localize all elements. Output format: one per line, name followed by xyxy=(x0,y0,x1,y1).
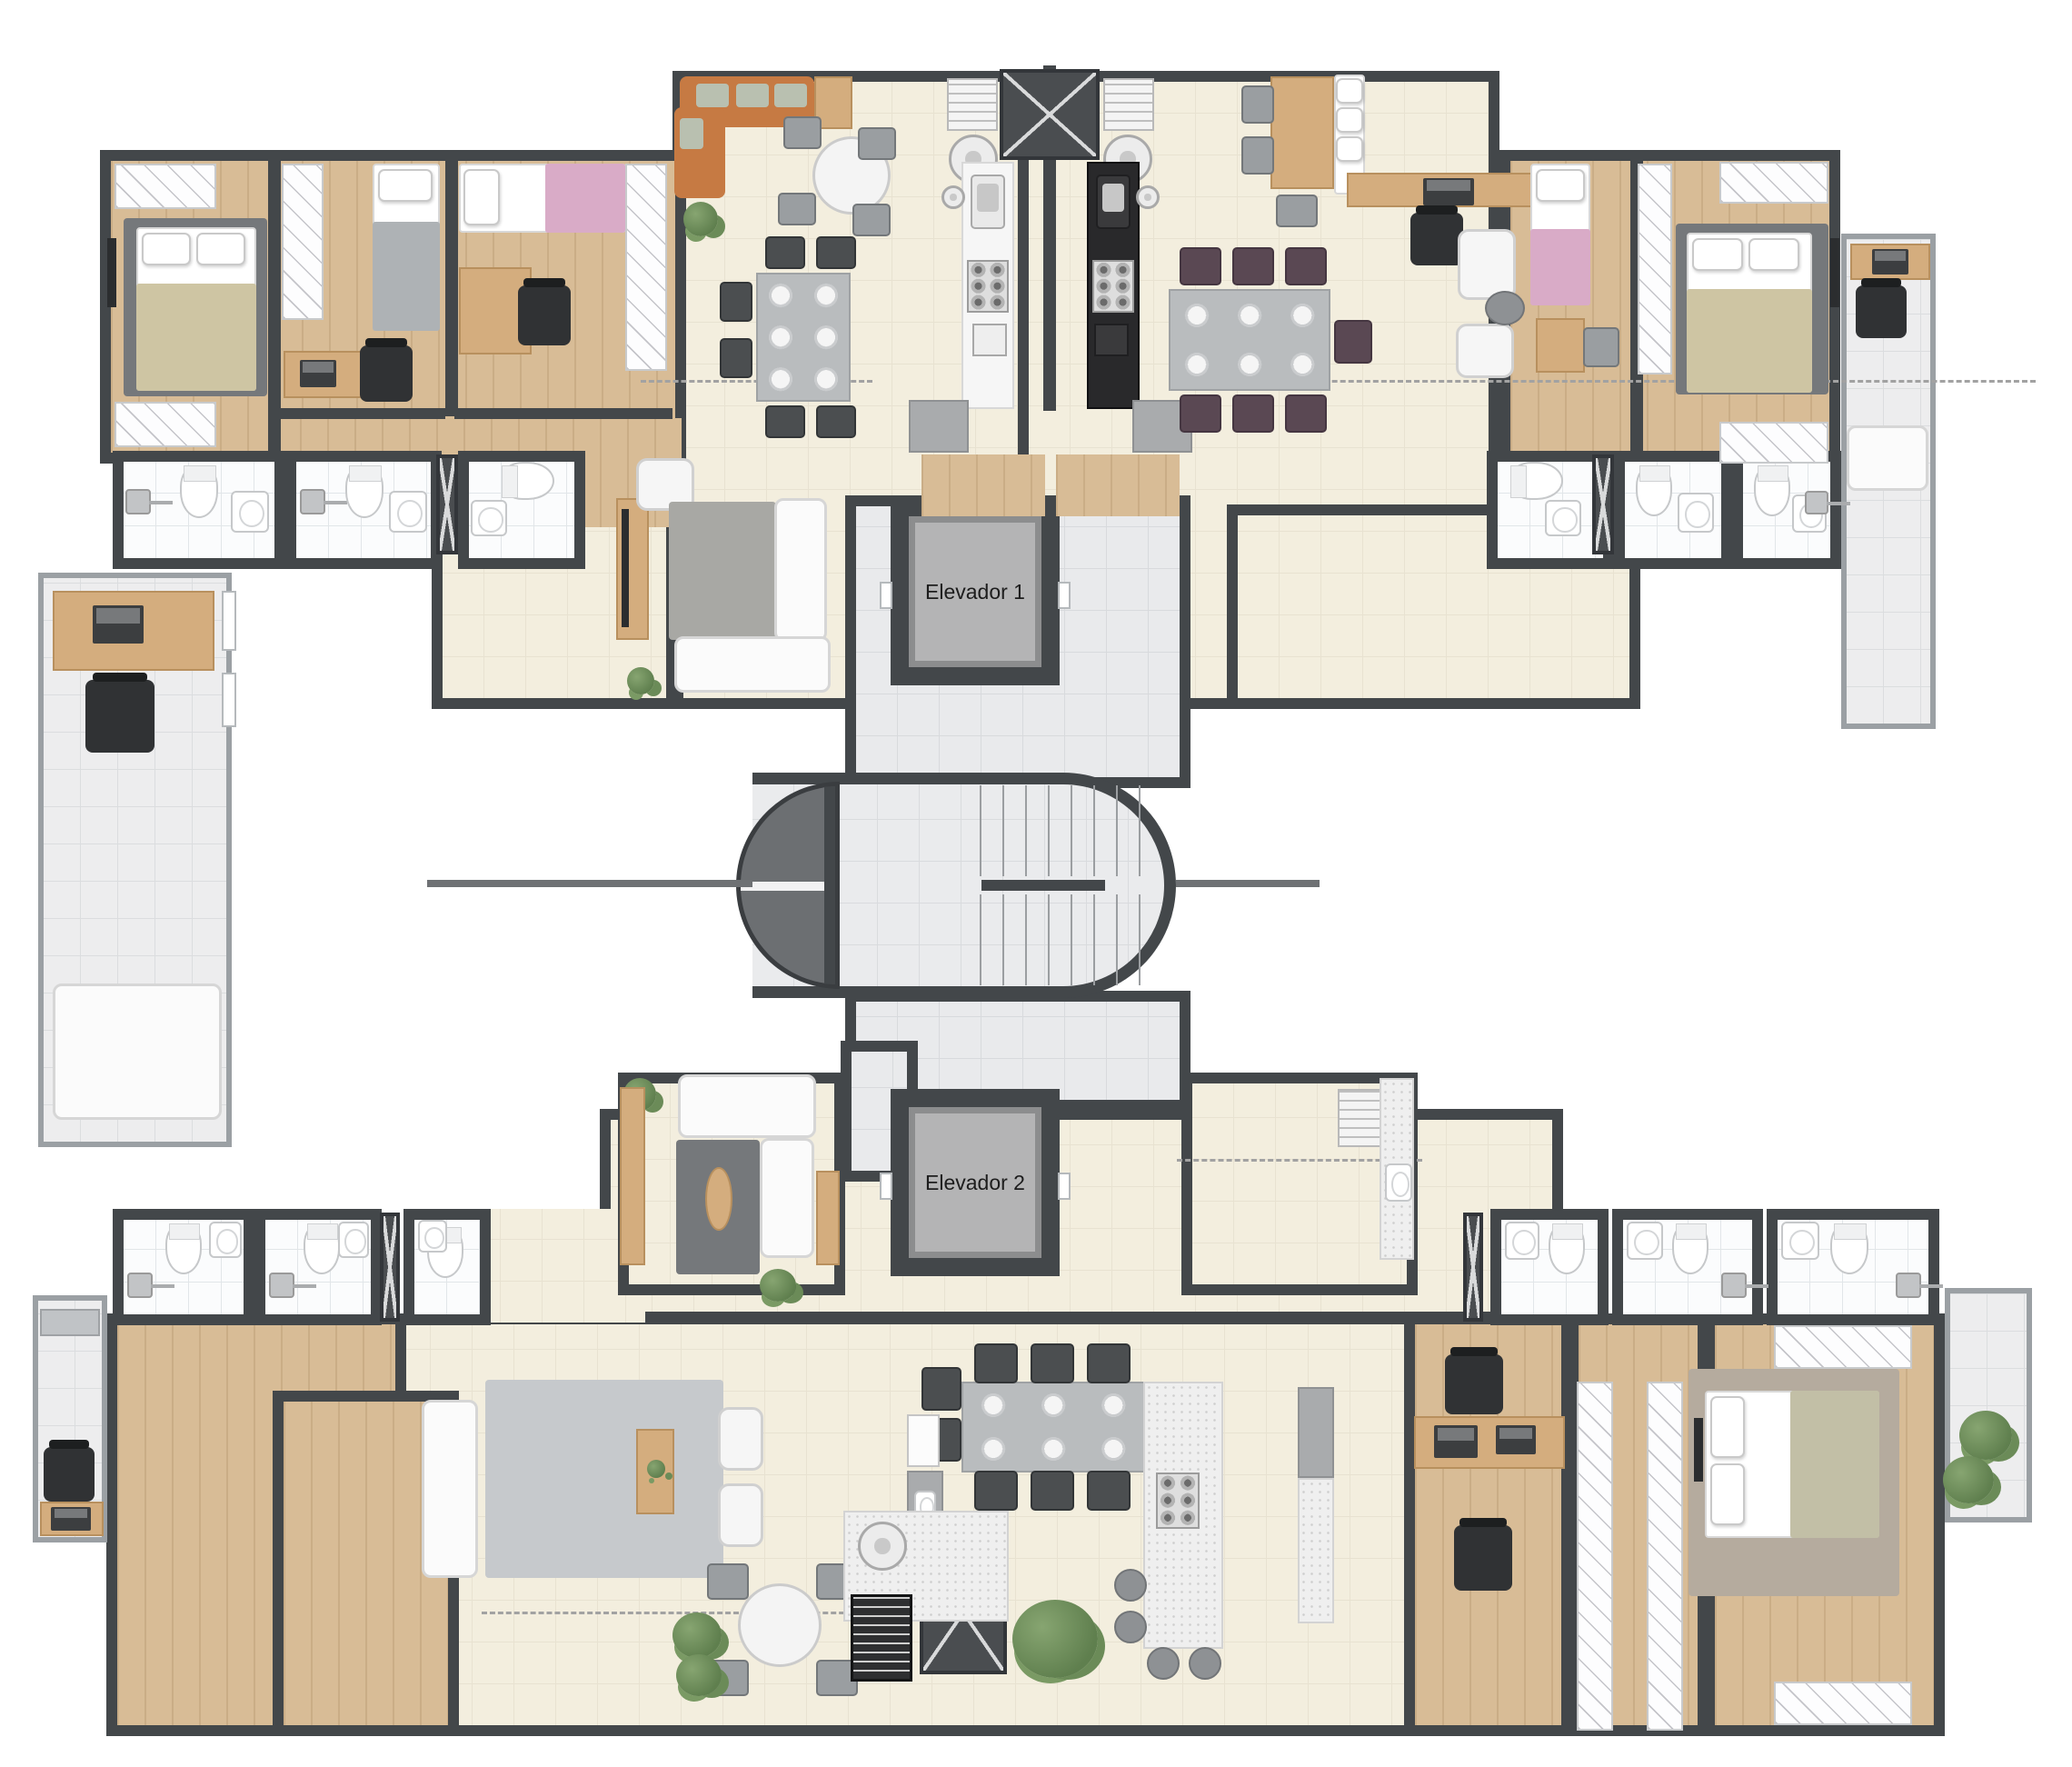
window xyxy=(222,591,236,651)
sink xyxy=(1781,1222,1819,1260)
barbecue-grill xyxy=(851,1594,912,1682)
faucet xyxy=(941,185,965,209)
toilet xyxy=(1830,1223,1868,1274)
toilet xyxy=(180,465,218,518)
pillow xyxy=(1336,78,1363,104)
toilet xyxy=(1754,465,1790,516)
toilet xyxy=(1510,462,1563,500)
plant xyxy=(647,1460,665,1478)
shower-head xyxy=(269,1273,294,1298)
office-chair xyxy=(85,680,154,753)
office-chair xyxy=(1454,1525,1512,1591)
chair xyxy=(1087,1343,1131,1383)
kitchen-sink xyxy=(1096,175,1131,229)
chair xyxy=(765,236,805,269)
chair xyxy=(1031,1343,1074,1383)
faucet xyxy=(1136,185,1160,209)
cooktop xyxy=(1156,1472,1200,1529)
chair xyxy=(1285,247,1327,285)
stove xyxy=(967,260,1009,313)
wardrobe xyxy=(115,402,216,447)
armchair xyxy=(718,1407,763,1471)
chair xyxy=(858,127,896,160)
chair xyxy=(1285,394,1327,433)
chair xyxy=(720,338,752,378)
cushion xyxy=(696,84,729,107)
toilet xyxy=(304,1223,340,1274)
sink xyxy=(389,491,427,533)
cushion xyxy=(736,84,769,107)
l-sofa xyxy=(674,636,831,693)
entry-floor-left xyxy=(921,454,1045,516)
plant xyxy=(1959,1411,2012,1460)
closet xyxy=(625,164,667,371)
office-chair xyxy=(1856,285,1907,338)
pillow xyxy=(1748,238,1799,271)
laundry-tank xyxy=(1103,78,1154,131)
chair xyxy=(1031,1471,1074,1511)
tv-panel xyxy=(1694,1418,1703,1482)
chair xyxy=(1241,85,1274,124)
bar-stool xyxy=(1114,1569,1147,1602)
round-sink xyxy=(858,1522,907,1571)
fridge xyxy=(907,1414,940,1467)
pillow xyxy=(196,233,245,265)
wall-stub-right xyxy=(1176,880,1320,887)
plant xyxy=(676,1654,722,1696)
l-sofa xyxy=(678,1074,816,1138)
sink xyxy=(1627,1222,1663,1260)
plant xyxy=(1012,1600,1098,1678)
dining-table xyxy=(756,273,851,402)
office-chair xyxy=(1410,213,1463,265)
chair xyxy=(1232,247,1274,285)
pillow xyxy=(1710,1396,1745,1458)
chair xyxy=(720,282,752,322)
toilet xyxy=(502,462,554,500)
plant xyxy=(627,667,654,694)
oven xyxy=(1094,324,1129,356)
sink xyxy=(1385,1163,1412,1202)
bar-stool xyxy=(1147,1647,1180,1680)
cushion xyxy=(680,118,703,149)
l-sofa xyxy=(774,498,827,642)
closet xyxy=(1577,1382,1613,1731)
chair xyxy=(816,236,856,269)
stair-rail xyxy=(981,880,1105,891)
bed-blanket xyxy=(545,164,625,233)
armchair xyxy=(718,1483,763,1547)
sink xyxy=(1545,500,1581,536)
sink xyxy=(471,500,507,536)
balcony-sofa xyxy=(53,983,222,1120)
pillow xyxy=(463,169,500,225)
vent-shaft xyxy=(1463,1213,1483,1322)
stair-treads-upper xyxy=(980,785,1160,876)
dining-table xyxy=(961,1382,1145,1472)
living-rug xyxy=(485,1380,723,1578)
shower-head xyxy=(1896,1273,1921,1298)
chair xyxy=(1232,394,1274,433)
shower-head xyxy=(300,489,325,514)
window xyxy=(222,673,236,727)
pillow xyxy=(142,233,191,265)
tv-panel xyxy=(107,238,116,307)
chair xyxy=(1180,394,1221,433)
entry-cabinet xyxy=(909,400,969,453)
shower-head xyxy=(1805,491,1828,514)
pillow xyxy=(378,169,433,202)
cabinet xyxy=(1298,1387,1334,1478)
chair xyxy=(921,1367,961,1411)
chair xyxy=(778,193,816,225)
office-chair xyxy=(1445,1354,1503,1414)
chair xyxy=(974,1343,1018,1383)
bed-blanket xyxy=(136,284,256,391)
toilet xyxy=(165,1223,202,1274)
oven xyxy=(972,324,1007,356)
laptop xyxy=(93,605,144,644)
bed-blanket xyxy=(1530,229,1590,305)
laptop xyxy=(300,360,336,387)
laundry-tank xyxy=(947,78,998,131)
lounge-chair xyxy=(1847,425,1928,491)
wing-partition xyxy=(454,408,672,419)
laptop xyxy=(1872,249,1908,275)
chair xyxy=(707,1563,749,1600)
sink xyxy=(338,1222,369,1258)
shower-head xyxy=(1721,1273,1747,1298)
toilet xyxy=(1672,1223,1708,1274)
vent-shaft xyxy=(436,454,458,554)
pillow xyxy=(1336,136,1363,162)
wall-stub-left xyxy=(427,880,752,887)
bar-stool xyxy=(1189,1647,1221,1680)
chair xyxy=(1087,1471,1131,1511)
elevator-door-tick xyxy=(1058,1173,1071,1200)
plant xyxy=(672,1612,722,1658)
elevator-door-tick xyxy=(1058,582,1071,609)
laptop xyxy=(51,1507,91,1531)
wardrobe xyxy=(1719,422,1828,464)
shower-head xyxy=(125,489,151,514)
washing-machine xyxy=(1338,1089,1383,1147)
laptop xyxy=(1434,1425,1478,1458)
cushion xyxy=(774,84,807,107)
pillow xyxy=(1710,1463,1745,1525)
closet xyxy=(1647,1382,1683,1731)
stair-treads-lower xyxy=(980,894,1160,985)
bar-stool xyxy=(1114,1611,1147,1643)
counter xyxy=(1298,1478,1334,1623)
pillow xyxy=(1336,107,1363,133)
plant xyxy=(683,202,718,236)
entry-floor-right xyxy=(1056,454,1180,516)
wardrobe xyxy=(115,164,216,209)
sink xyxy=(1505,1222,1539,1260)
armchair xyxy=(1458,229,1516,300)
office-chair xyxy=(518,285,571,345)
vent-shaft xyxy=(1592,454,1614,554)
desk xyxy=(1536,318,1585,373)
chair xyxy=(1241,136,1274,175)
bed-blanket xyxy=(373,222,440,331)
laptop xyxy=(1423,178,1474,205)
sink xyxy=(418,1220,447,1253)
chair xyxy=(974,1471,1018,1511)
wing-partition xyxy=(277,408,445,419)
coffee-table xyxy=(705,1167,732,1231)
towel-rack xyxy=(40,1309,100,1336)
chair xyxy=(1334,320,1372,364)
sideboard xyxy=(816,1171,840,1265)
plant xyxy=(760,1269,796,1302)
closet xyxy=(1638,164,1672,374)
sofa xyxy=(422,1400,478,1578)
office-chair xyxy=(360,345,413,402)
stove xyxy=(1092,260,1134,313)
tv xyxy=(622,509,629,627)
bed-blanket xyxy=(1790,1391,1879,1538)
sideboard xyxy=(620,1087,645,1265)
round-table xyxy=(738,1583,822,1667)
kitchen-sink xyxy=(971,175,1005,229)
sink xyxy=(209,1222,242,1258)
living-rug xyxy=(669,502,776,640)
tv-panel xyxy=(1830,238,1839,307)
wardrobe xyxy=(1774,1682,1912,1725)
breakfast-table xyxy=(1270,76,1334,189)
chair xyxy=(783,116,822,149)
sink xyxy=(231,491,269,533)
chair xyxy=(1583,327,1619,367)
plant xyxy=(1943,1456,1994,1503)
pillow xyxy=(1536,169,1585,202)
chair xyxy=(852,204,891,236)
wardrobe xyxy=(1719,162,1828,204)
chair xyxy=(1276,195,1318,227)
wardrobe xyxy=(1774,1325,1912,1369)
vent-shaft xyxy=(380,1213,400,1322)
bed-blanket xyxy=(1687,289,1812,393)
sink xyxy=(1678,493,1714,533)
elevator-1-label: Elevador 1 xyxy=(891,580,1060,604)
floor-plan: Elevador 1Elevador 2 xyxy=(0,0,2072,1767)
toilet xyxy=(345,465,384,518)
l-sofa xyxy=(760,1138,814,1258)
pillow xyxy=(1692,238,1743,271)
toilet xyxy=(1636,465,1672,516)
side-table xyxy=(1485,291,1525,325)
service-shaft-top xyxy=(1000,69,1100,160)
elevator-2-label: Elevador 2 xyxy=(891,1171,1060,1195)
chair xyxy=(816,405,856,438)
dining-table xyxy=(1169,289,1330,391)
toilet xyxy=(1549,1223,1585,1274)
armchair xyxy=(1456,324,1514,378)
chair xyxy=(1180,247,1221,285)
laptop xyxy=(1496,1425,1536,1454)
bathroom-tr-2 xyxy=(1614,451,1732,569)
wing-partition xyxy=(445,155,458,416)
shower-head xyxy=(127,1273,153,1298)
chair xyxy=(765,405,805,438)
office-chair xyxy=(44,1447,95,1502)
closet xyxy=(282,164,324,320)
